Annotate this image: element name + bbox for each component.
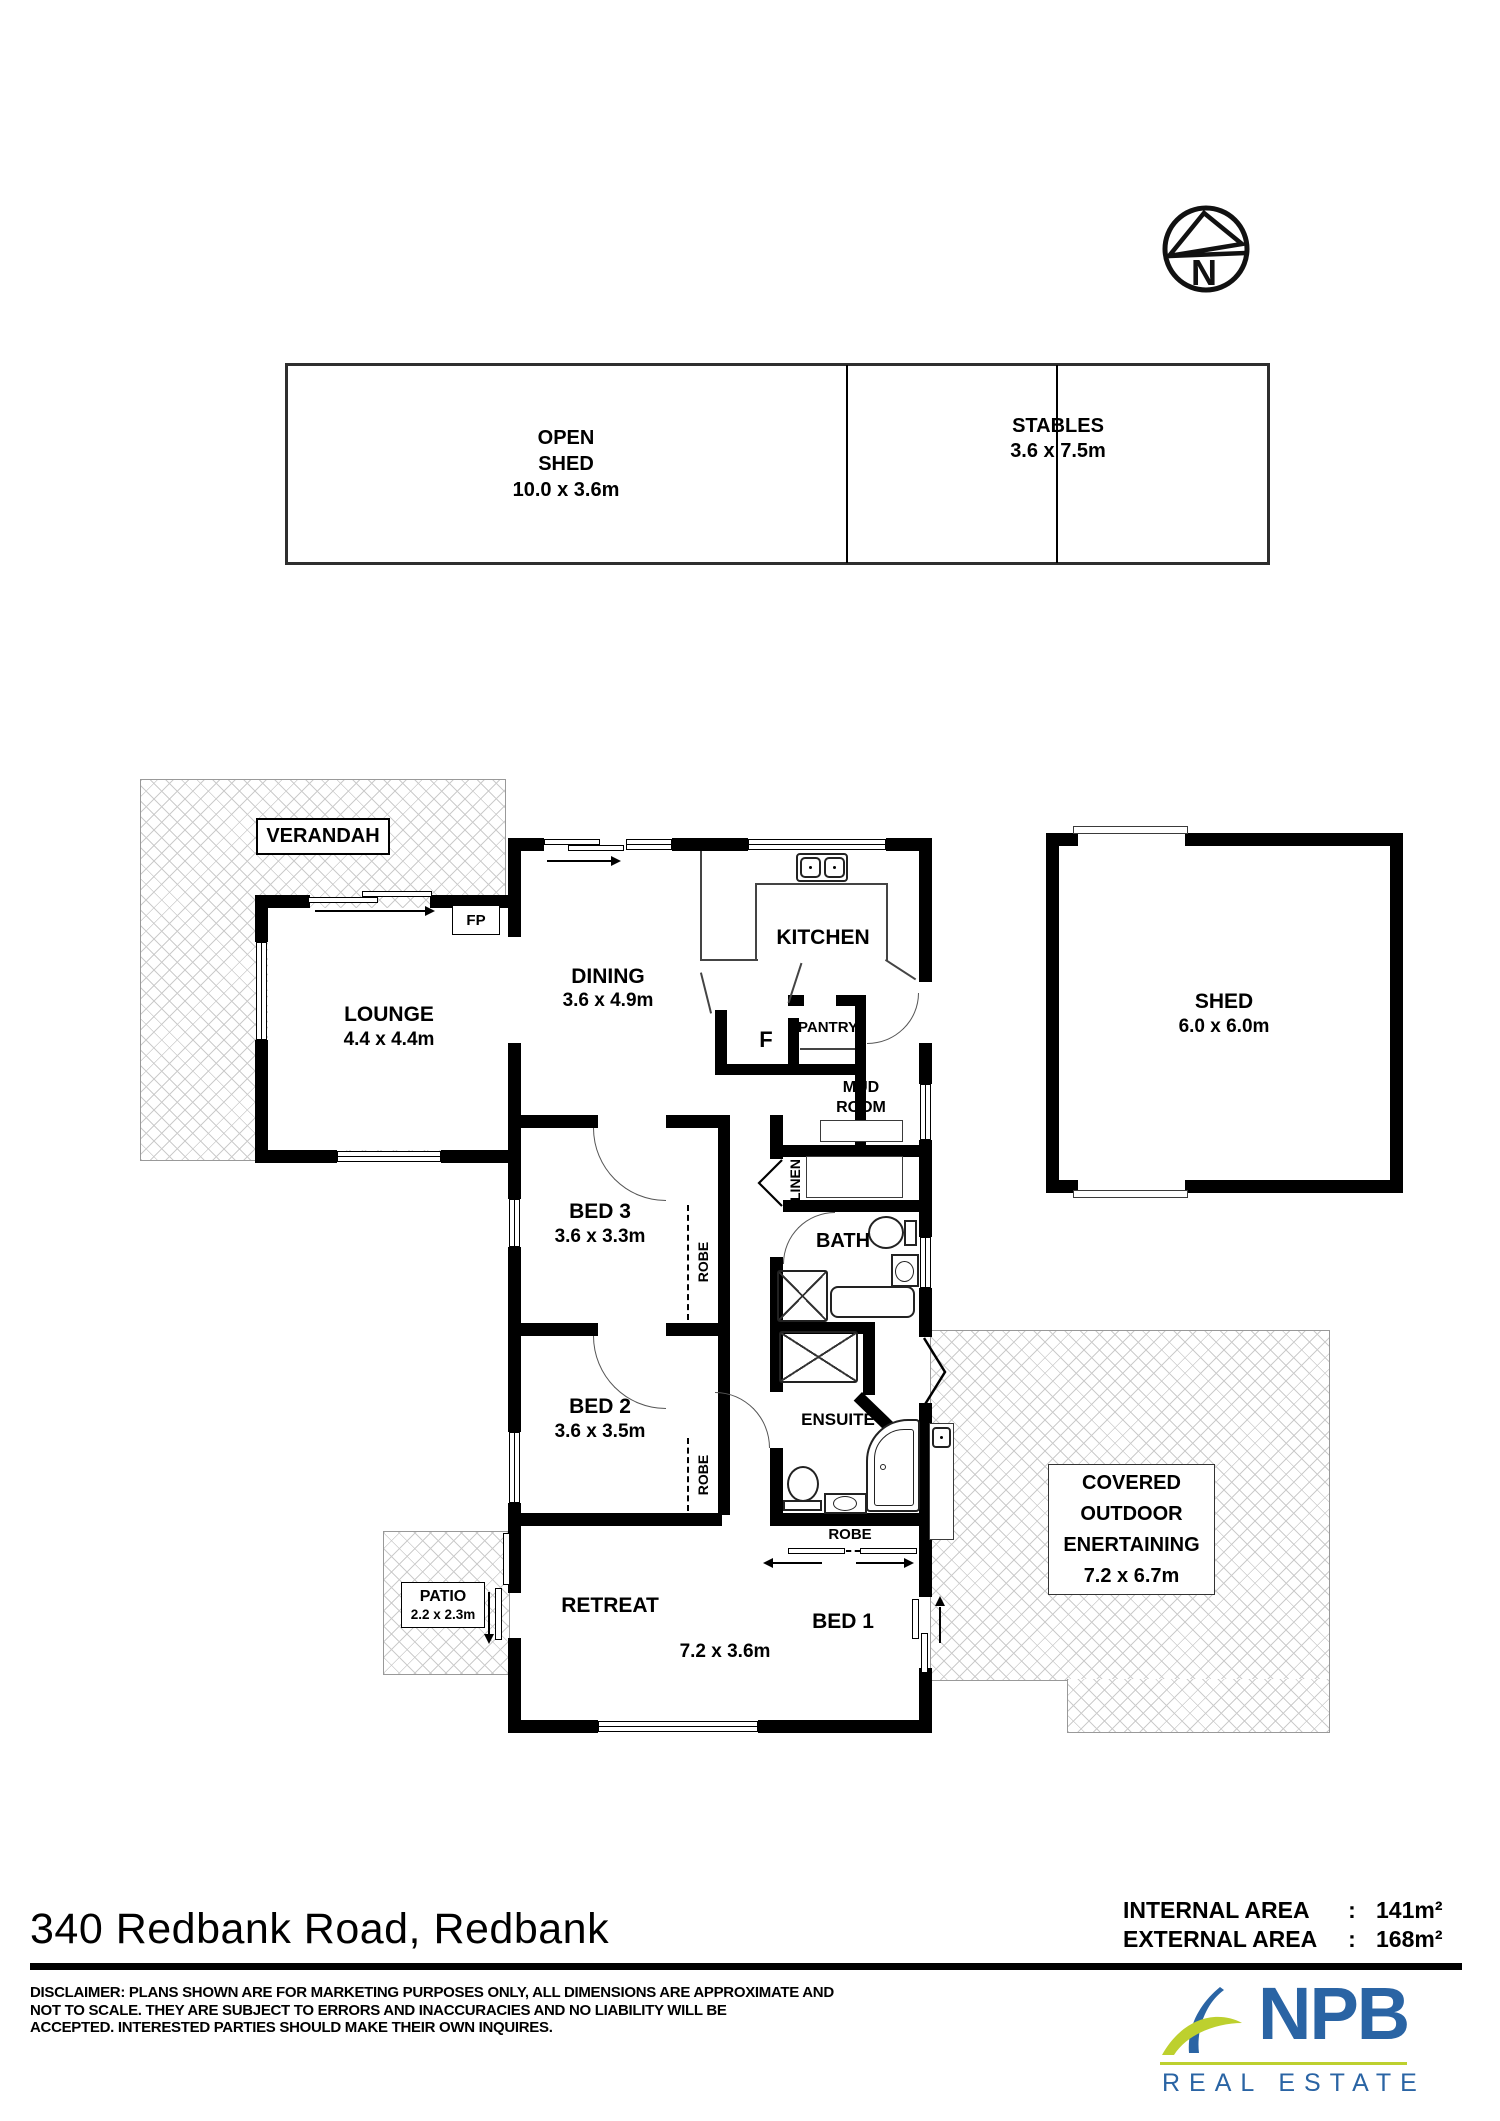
dining-name: DINING	[571, 965, 645, 989]
covered-outdoor-line2: OUTDOOR	[1080, 1499, 1182, 1530]
window	[509, 1432, 520, 1503]
stables-name: STABLES	[940, 414, 1176, 439]
wall-segment	[508, 838, 544, 851]
window	[626, 839, 672, 850]
wall-segment	[508, 1247, 521, 1432]
patio-name: PATIO	[420, 1587, 467, 1607]
npb-tagline: REAL ESTATE	[1162, 2069, 1426, 2098]
bed3-dimension: 3.6 x 3.3m	[555, 1226, 646, 1248]
wall-segment	[255, 1150, 337, 1163]
pantry-name: PANTRY	[798, 1019, 858, 1036]
bed2-dimension: 3.6 x 3.5m	[555, 1421, 646, 1443]
internal-area-label: INTERNAL AREA	[1123, 1896, 1328, 1925]
wall-segment	[508, 1638, 521, 1733]
kitchen-counter	[885, 959, 916, 980]
door-direction-arrow	[315, 910, 425, 912]
open-shed-label: OPEN SHED 10.0 x 3.6m	[441, 425, 691, 503]
arrow-head-icon	[904, 1558, 914, 1568]
npb-logo-underline	[1160, 2062, 1407, 2065]
compass-letter: N	[1191, 252, 1217, 293]
window	[256, 942, 267, 1040]
toilet-bowl	[868, 1216, 904, 1249]
disclaimer-line3: ACCEPTED. INTERESTED PARTIES SHOULD MAKE…	[30, 2019, 834, 2037]
open-shed-name-line2: SHED	[441, 451, 691, 477]
wall-segment	[919, 1288, 932, 1337]
covered-outdoor-label-box: COVERED OUTDOOR ENERTAINING 7.2 x 6.7m	[1048, 1464, 1215, 1595]
wall-segment	[508, 1720, 598, 1733]
sliding-door-panel	[495, 1588, 502, 1640]
external-area-label: EXTERNAL AREA	[1123, 1925, 1328, 1954]
compass-north-icon: N	[1160, 203, 1252, 295]
wall-segment	[508, 1513, 722, 1526]
wall-segment	[863, 1322, 875, 1395]
kitchen-counter	[755, 883, 888, 885]
external-area-separator: :	[1328, 1925, 1376, 1954]
disclaimer-line2: NOT TO SCALE. THEY ARE SUBJECT TO ERRORS…	[30, 2002, 834, 2020]
sliding-door-track	[687, 1438, 689, 1511]
arrow-head-icon	[484, 1634, 494, 1644]
toilet-tank	[783, 1500, 822, 1511]
page-title: 340 Redbank Road, Redbank	[30, 1905, 609, 1954]
bed3-name: BED 3	[569, 1200, 631, 1224]
door-direction-arrow	[488, 1592, 490, 1634]
door-direction-arrow	[856, 1562, 906, 1564]
wall-segment	[770, 1448, 783, 1513]
sliding-door-panel	[912, 1599, 919, 1639]
disclaimer-line1: DISCLAIMER: PLANS SHOWN ARE FOR MARKETIN…	[30, 1984, 834, 2002]
kitchen-counter	[700, 959, 758, 961]
fridge-label: F	[759, 1027, 772, 1053]
sliding-door-panel	[308, 897, 378, 903]
sliding-door-panel	[860, 1548, 917, 1554]
wall-segment	[919, 1140, 932, 1237]
sliding-door-panel	[568, 845, 624, 851]
door-direction-arrow	[547, 860, 613, 862]
wall-segment	[783, 1200, 919, 1212]
wall-segment	[846, 365, 848, 563]
bath-drain	[880, 1464, 886, 1470]
wall-segment	[508, 1323, 598, 1336]
internal-area-separator: :	[1328, 1896, 1376, 1925]
npb-brand: NPB	[1258, 1971, 1408, 2056]
window	[920, 1237, 931, 1288]
covered-outdoor-line3: ENERTAINING	[1063, 1530, 1199, 1561]
disclaimer: DISCLAIMER: PLANS SHOWN ARE FOR MARKETIN…	[30, 1984, 834, 2037]
kitchen-counter	[700, 851, 702, 961]
patio-label-box: PATIO 2.2 x 2.3m	[401, 1582, 485, 1628]
kitchen-counter	[755, 883, 757, 961]
covered-outdoor-area-notch	[1067, 1679, 1330, 1733]
door-arc	[867, 993, 919, 1044]
sliding-door-panel	[503, 1533, 510, 1585]
toilet-bowl	[787, 1466, 819, 1502]
wall-segment	[758, 1720, 932, 1733]
robe2-name: ROBE	[695, 1455, 711, 1495]
stables-dimension: 3.6 x 7.5m	[940, 439, 1176, 464]
bathtub	[830, 1286, 915, 1318]
retreat-dimension: 7.2 x 3.6m	[680, 1641, 771, 1663]
npb-logo: NPB REAL ESTATE	[1158, 1985, 1460, 2100]
open-shed-dimension: 10.0 x 3.6m	[441, 477, 691, 503]
door-leaf	[700, 972, 712, 1013]
sink-drain	[809, 866, 812, 869]
kitchen-counter	[886, 883, 888, 961]
wall-segment	[255, 1040, 268, 1163]
window	[920, 1084, 931, 1140]
wall-segment	[1056, 365, 1058, 563]
area-summary: INTERNAL AREA : 141m² EXTERNAL AREA : 16…	[1123, 1896, 1476, 1954]
wall-segment	[508, 838, 521, 937]
wall-segment	[255, 895, 268, 942]
shed-roller-door	[1073, 826, 1188, 834]
shed-roller-door	[1073, 1190, 1188, 1198]
covered-outdoor-dimension: 7.2 x 6.7m	[1084, 1561, 1180, 1592]
bed1-name: BED 1	[812, 1610, 874, 1634]
wall-segment	[715, 1064, 790, 1075]
shower	[777, 1270, 828, 1322]
sliding-door-track	[846, 1550, 860, 1552]
open-shed-stables-outline	[285, 363, 1270, 565]
npb-sail-icon	[1158, 1985, 1258, 2068]
window	[598, 1721, 758, 1732]
door-arc	[715, 1392, 770, 1448]
internal-area-row: INTERNAL AREA : 141m²	[1123, 1896, 1476, 1925]
bath-name: BATH	[816, 1230, 870, 1253]
external-area-value: 168m²	[1376, 1925, 1476, 1954]
sliding-door-panel	[921, 1633, 928, 1673]
arrow-head-icon	[425, 906, 435, 916]
wall-segment	[919, 838, 932, 982]
wall-segment	[508, 1115, 598, 1128]
mud-room-bench	[820, 1120, 903, 1142]
internal-area-value: 141m²	[1376, 1896, 1476, 1925]
robe3-name: ROBE	[695, 1242, 711, 1282]
floor-plan-page: N OPEN SHED 10.0 x 3.6m STABLES 3.6 x 7.…	[0, 0, 1500, 2121]
kitchen-name: KITCHEN	[776, 926, 869, 950]
bed2-name: BED 2	[569, 1395, 631, 1419]
pantry-shelf	[800, 1048, 855, 1050]
linen-name: LINEN	[787, 1159, 803, 1201]
robe1-name: ROBE	[828, 1526, 871, 1543]
retreat-name: RETREAT	[561, 1594, 659, 1618]
sliding-door-panel	[362, 891, 432, 897]
arrow-head-icon	[763, 1558, 773, 1568]
fireplace-label: FP	[466, 912, 485, 929]
arrow-head-icon	[935, 1596, 945, 1606]
open-shed-name-line1: OPEN	[441, 425, 691, 451]
footer-divider	[30, 1963, 1462, 1970]
door-arc	[593, 1128, 666, 1201]
external-area-row: EXTERNAL AREA : 168m²	[1123, 1925, 1476, 1954]
shed-name: SHED	[1195, 990, 1253, 1014]
window	[337, 1151, 441, 1162]
patio-dimension: 2.2 x 2.3m	[411, 1607, 476, 1624]
bath-sink	[895, 1261, 914, 1282]
wall-segment	[919, 1043, 932, 1084]
door-direction-arrow	[939, 1607, 941, 1643]
sliding-door-track	[687, 1205, 689, 1320]
wall-segment	[788, 1064, 866, 1075]
verandah-name: VERANDAH	[266, 825, 379, 848]
door-direction-arrow	[772, 1562, 822, 1564]
linen-shelf	[806, 1156, 903, 1198]
stables-label: STABLES 3.6 x 7.5m	[940, 414, 1176, 464]
window	[748, 839, 886, 850]
ensuite-sink	[833, 1496, 857, 1511]
mud-room-line2: ROOM	[836, 1099, 886, 1117]
verandah-label-box: VERANDAH	[256, 818, 390, 855]
linen-bifold-door	[754, 1159, 784, 1212]
shower	[779, 1331, 858, 1383]
shed-door-gap	[1078, 833, 1185, 846]
dining-dimension: 3.6 x 4.9m	[563, 990, 654, 1012]
french-doors	[923, 1337, 949, 1412]
lounge-dimension: 4.4 x 4.4m	[344, 1029, 435, 1051]
arrow-head-icon	[611, 856, 621, 866]
window	[509, 1199, 520, 1247]
shed-dimension: 6.0 x 6.0m	[1179, 1016, 1270, 1038]
covered-outdoor-line1: COVERED	[1082, 1468, 1181, 1499]
sliding-door-panel	[788, 1548, 845, 1554]
fireplace-box: FP	[452, 905, 500, 935]
sink-drain	[833, 866, 836, 869]
wall-segment	[770, 1115, 783, 1159]
wall-segment	[666, 1323, 730, 1336]
lounge-name: LOUNGE	[344, 1003, 434, 1027]
wall-segment	[718, 1115, 730, 1515]
mud-room-line1: MUD	[843, 1079, 879, 1097]
sink-drain	[940, 1436, 943, 1439]
ensuite-name: ENSUITE	[801, 1410, 875, 1430]
wall-segment	[770, 1513, 932, 1526]
toilet-tank	[904, 1220, 917, 1246]
wall-segment	[672, 838, 748, 851]
